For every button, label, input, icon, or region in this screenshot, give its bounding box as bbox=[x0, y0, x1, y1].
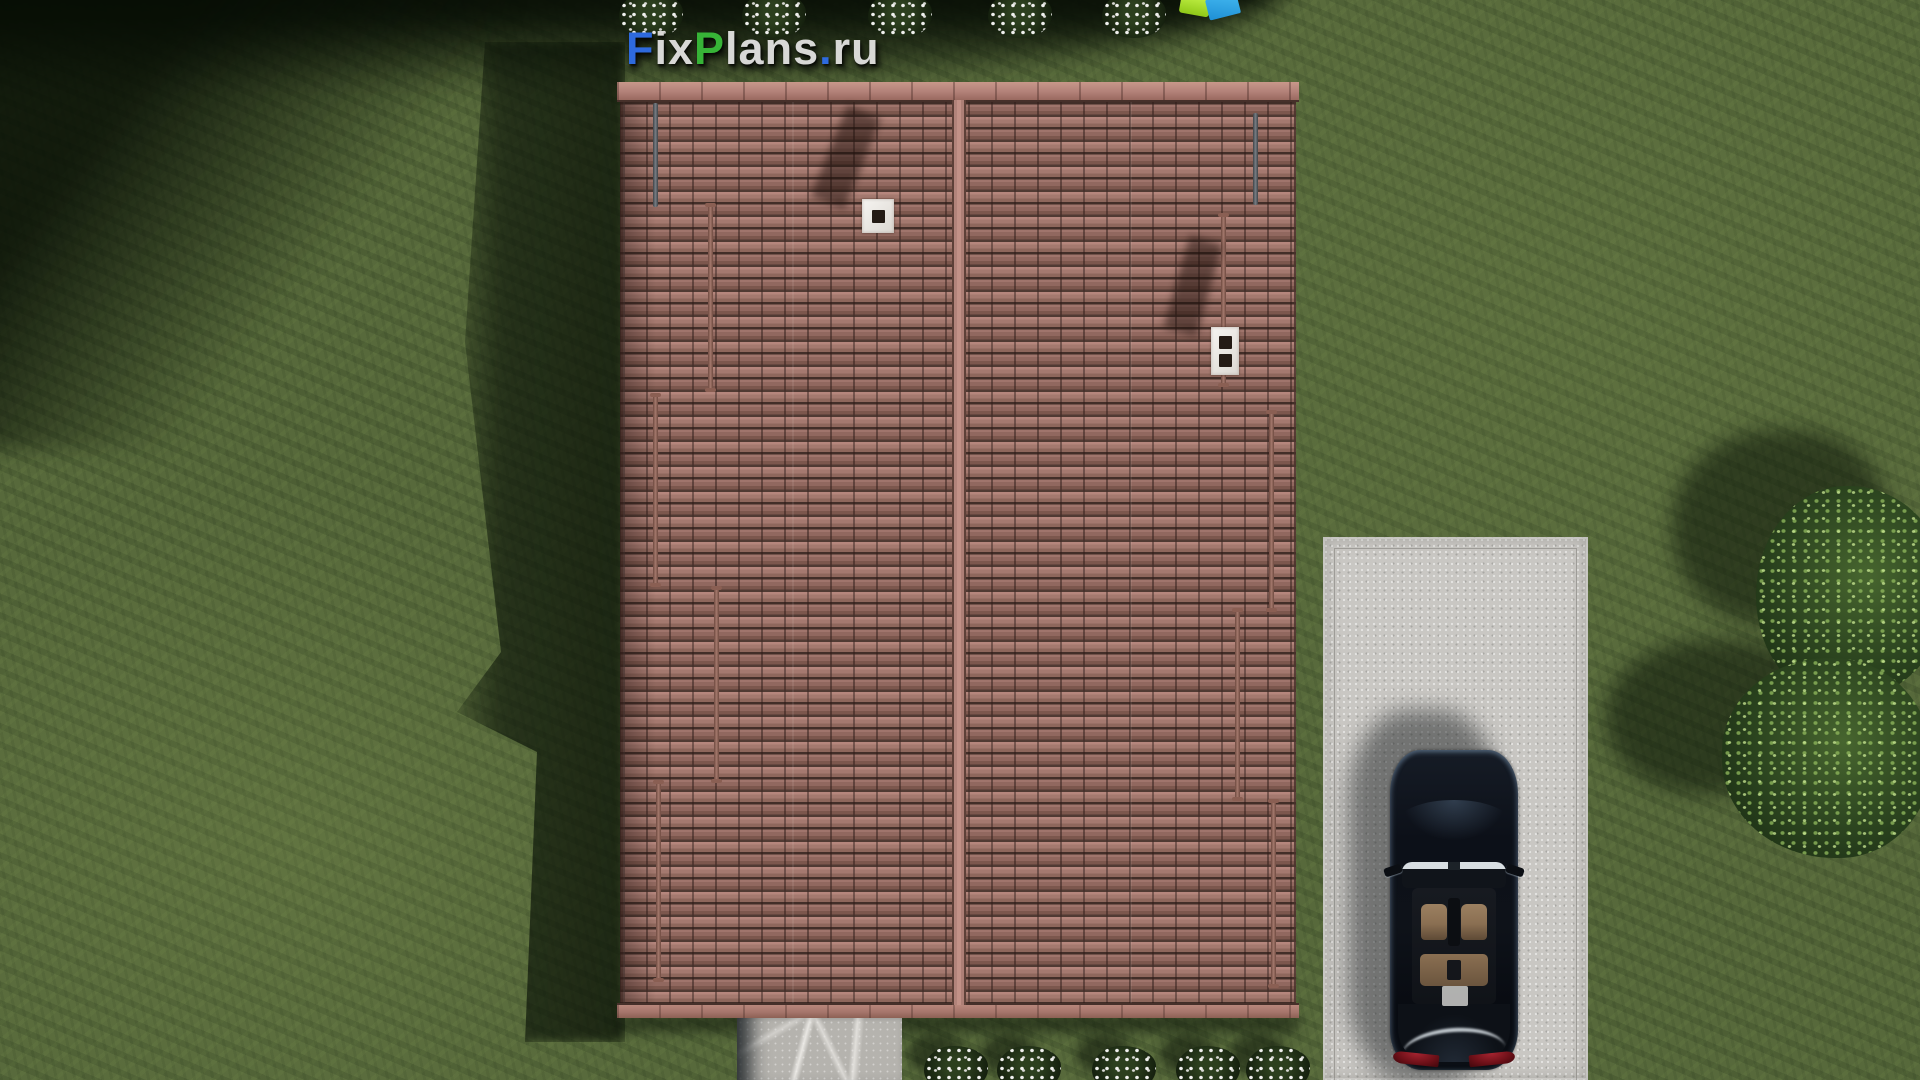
snow-guard-rail bbox=[653, 103, 658, 207]
car-roof-patch bbox=[1442, 986, 1468, 1006]
flower-bush bbox=[1176, 1046, 1240, 1080]
roof-eave-bottom bbox=[617, 1003, 1299, 1018]
top-left-shadow bbox=[0, 0, 510, 450]
snow-guard-rail bbox=[708, 205, 713, 390]
snow-guard-rail bbox=[714, 588, 719, 781]
watermark-logo: FixPlans.ru bbox=[626, 24, 880, 74]
logo-dot: . bbox=[819, 23, 833, 74]
snow-guard-rail bbox=[1253, 113, 1258, 205]
chimney-double-flue bbox=[1211, 327, 1239, 375]
car-body bbox=[1390, 750, 1518, 1070]
car-mirror-right bbox=[1505, 863, 1525, 877]
roof-ridge-cap-top bbox=[617, 82, 1299, 102]
snow-guard-rail bbox=[1271, 801, 1276, 986]
flower-bush bbox=[997, 1046, 1061, 1080]
car-hood-highlight bbox=[1398, 800, 1510, 844]
chimney-flue bbox=[1219, 336, 1232, 349]
logo-letter-f: F bbox=[626, 23, 655, 74]
car-windshield bbox=[1402, 862, 1506, 888]
snow-guard-rail bbox=[656, 782, 661, 980]
toy-blue-part bbox=[1205, 0, 1241, 21]
stone-walkway bbox=[737, 1012, 902, 1080]
parked-car bbox=[1380, 738, 1530, 1080]
chimney-flue bbox=[872, 210, 885, 223]
flower-bush bbox=[988, 0, 1052, 38]
car-rear-bench bbox=[1420, 954, 1488, 986]
house-roof bbox=[620, 82, 1296, 1018]
logo-letter-p: P bbox=[694, 23, 725, 74]
snow-guard-rail bbox=[653, 395, 658, 585]
car-seat-front-left bbox=[1421, 904, 1447, 940]
flower-bush bbox=[924, 1046, 988, 1080]
car-center-console bbox=[1448, 898, 1460, 946]
tree-canopy bbox=[1722, 658, 1920, 858]
flower-bush bbox=[1246, 1046, 1310, 1080]
flower-bush bbox=[1092, 1046, 1156, 1080]
snow-guard-rail bbox=[1269, 412, 1274, 610]
chimney-flue bbox=[1219, 354, 1232, 367]
house-cast-shadow bbox=[425, 42, 625, 1042]
roof-center-ridge bbox=[952, 100, 966, 1005]
chimney-single-flue bbox=[862, 199, 894, 233]
roof-left-shade bbox=[620, 102, 656, 1003]
logo-letters-lans: lans bbox=[725, 23, 819, 74]
car-seat-front-right bbox=[1461, 904, 1487, 940]
logo-letters-ix: ix bbox=[655, 23, 695, 74]
logo-letters-ru: ru bbox=[833, 23, 880, 74]
snow-guard-rail bbox=[1235, 610, 1240, 799]
aerial-scene-lawn: FixPlans.ru bbox=[0, 0, 1920, 1080]
flower-bush bbox=[1102, 0, 1166, 38]
